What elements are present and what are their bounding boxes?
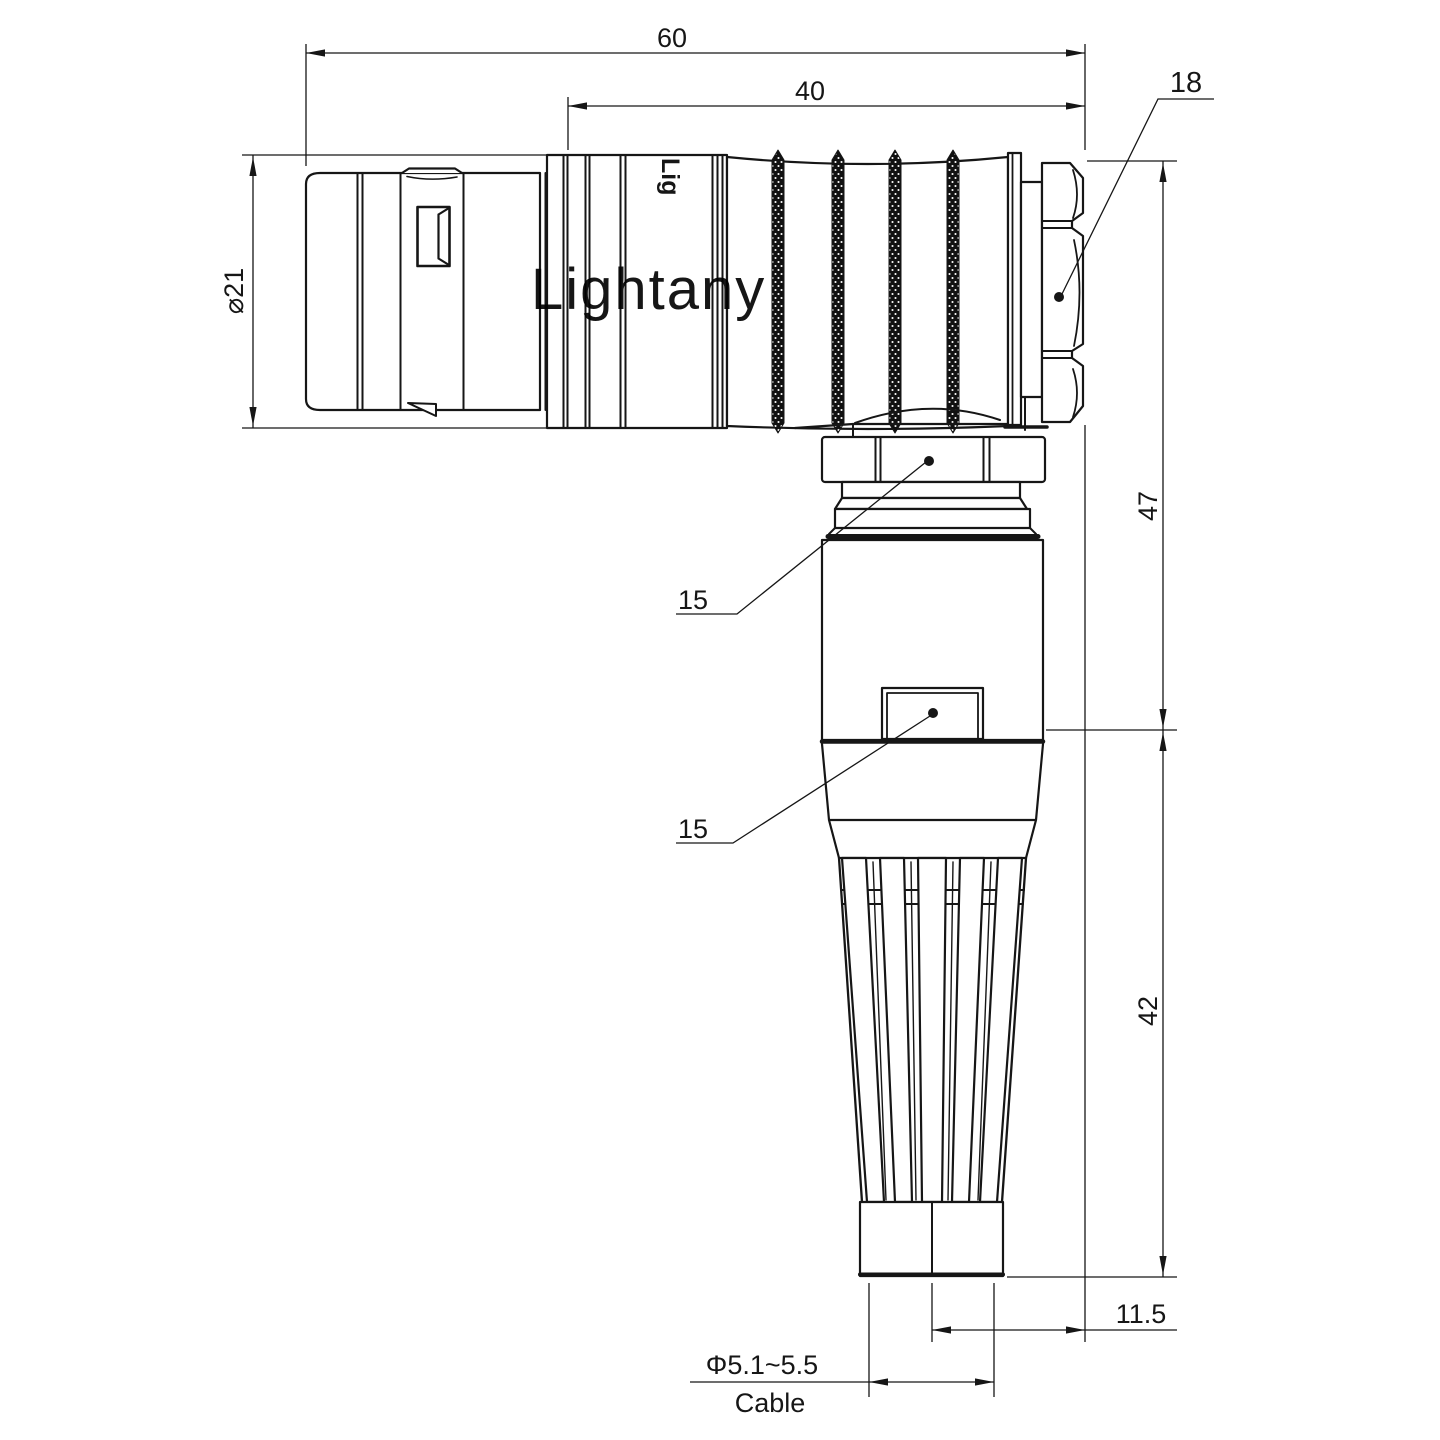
- latch-window: [418, 207, 450, 266]
- cable-sleeve: [860, 1202, 1003, 1276]
- dim-18-label: 18: [1170, 67, 1202, 99]
- leader-dot: [924, 456, 934, 466]
- knurl-strip: [832, 150, 844, 433]
- technical-drawing-page: Lig Lightany: [0, 0, 1440, 1440]
- flange: [835, 498, 1027, 509]
- knurled-barrel: [727, 150, 1008, 433]
- rear-end: [1005, 153, 1083, 430]
- end-ring: [1008, 153, 1021, 425]
- strain-relief: [839, 858, 1026, 1202]
- body-lower-fill: [822, 744, 1043, 858]
- arrow: [1066, 1326, 1085, 1333]
- fin: [918, 858, 946, 1202]
- arrow: [1159, 732, 1166, 751]
- dim-cable-dia-label: Φ5.1~5.5: [706, 1350, 818, 1380]
- arrow: [932, 1326, 951, 1333]
- arrow: [249, 407, 256, 426]
- gland-rings: [828, 482, 1038, 537]
- dim-42-label: 42: [1133, 996, 1163, 1026]
- dim-11-5-label: 11.5: [1116, 1299, 1167, 1329]
- dim-47-label: 47: [1133, 491, 1163, 521]
- latch-bump: [402, 169, 462, 174]
- barrel-engraving-text: Lig: [656, 158, 684, 196]
- arrow: [1066, 102, 1085, 109]
- dim-15-tab-label: 15: [678, 814, 708, 844]
- plug-body: [306, 169, 546, 417]
- knurl-strip: [889, 150, 901, 433]
- arrow: [568, 102, 587, 109]
- watermark-text: Lightany: [531, 257, 766, 322]
- leader-dot: [928, 708, 938, 718]
- connector-body: [822, 540, 1043, 858]
- arrow: [249, 157, 256, 176]
- arrow: [975, 1378, 994, 1385]
- cable-label: Cable: [735, 1388, 806, 1418]
- dim-40-lines: [568, 97, 1085, 150]
- arrow: [1159, 163, 1166, 182]
- arrow: [1159, 709, 1166, 728]
- barrel-outline: [727, 157, 1008, 429]
- leader-dot: [1054, 292, 1064, 302]
- arrow: [1066, 49, 1085, 56]
- dim-15-backnut-label: 15: [678, 585, 708, 615]
- arrow: [1159, 1256, 1166, 1275]
- knurl-strip: [772, 150, 784, 433]
- arrow: [306, 49, 325, 56]
- dim-40-label: 40: [795, 76, 825, 106]
- neck: [1021, 182, 1042, 397]
- arrow: [869, 1378, 888, 1385]
- ring-a: [842, 482, 1020, 498]
- knurl-strip: [947, 150, 959, 433]
- dim-60-label: 60: [657, 23, 687, 53]
- connector-elbow-drawing: Lig Lightany: [0, 0, 1440, 1440]
- dim-60-lines: [306, 44, 1085, 166]
- dim-dia21-label: ⌀21: [219, 268, 249, 314]
